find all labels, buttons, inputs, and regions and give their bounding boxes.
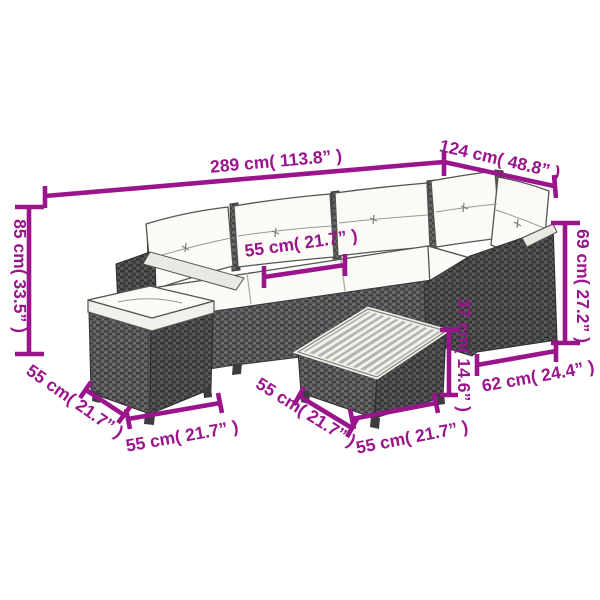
- dimension-armrest-height: 69 cm( 27.2” ): [551, 223, 593, 343]
- dimension-label-sofa-height: 85 cm( 33.5” ): [10, 219, 30, 333]
- dimension-sofa-height: 85 cm( 33.5” ): [10, 207, 44, 354]
- dimension-label-table-height: 37 cm( 14.6” ): [454, 298, 474, 412]
- dimension-label-armrest-height: 69 cm( 27.2” ): [573, 229, 593, 343]
- dimension-label-ottoman-width: 55 cm( 21.7” ): [124, 416, 240, 455]
- back-cushion: [431, 171, 500, 247]
- product-dimension-diagram: 289 cm( 113.8” ) 124 cm( 48.8” ) 85 cm( …: [0, 0, 600, 600]
- diagram-canvas: 289 cm( 113.8” ) 124 cm( 48.8” ) 85 cm( …: [0, 0, 600, 600]
